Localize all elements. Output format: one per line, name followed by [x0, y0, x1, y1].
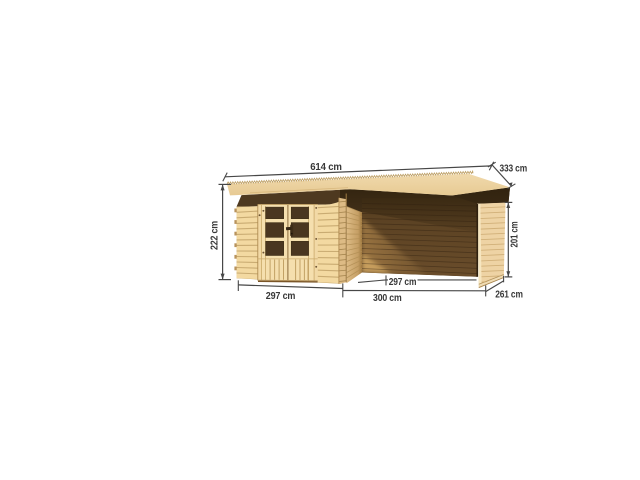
svg-text:297 cm: 297 cm [266, 291, 296, 302]
svg-text:222 cm: 222 cm [210, 221, 221, 250]
svg-text:614 cm: 614 cm [310, 162, 342, 173]
svg-text:297 cm: 297 cm [389, 277, 417, 288]
svg-text:261 cm: 261 cm [495, 290, 523, 301]
svg-text:333 cm: 333 cm [500, 163, 528, 174]
svg-text:201 cm: 201 cm [510, 221, 521, 247]
svg-text:300 cm: 300 cm [373, 293, 402, 304]
